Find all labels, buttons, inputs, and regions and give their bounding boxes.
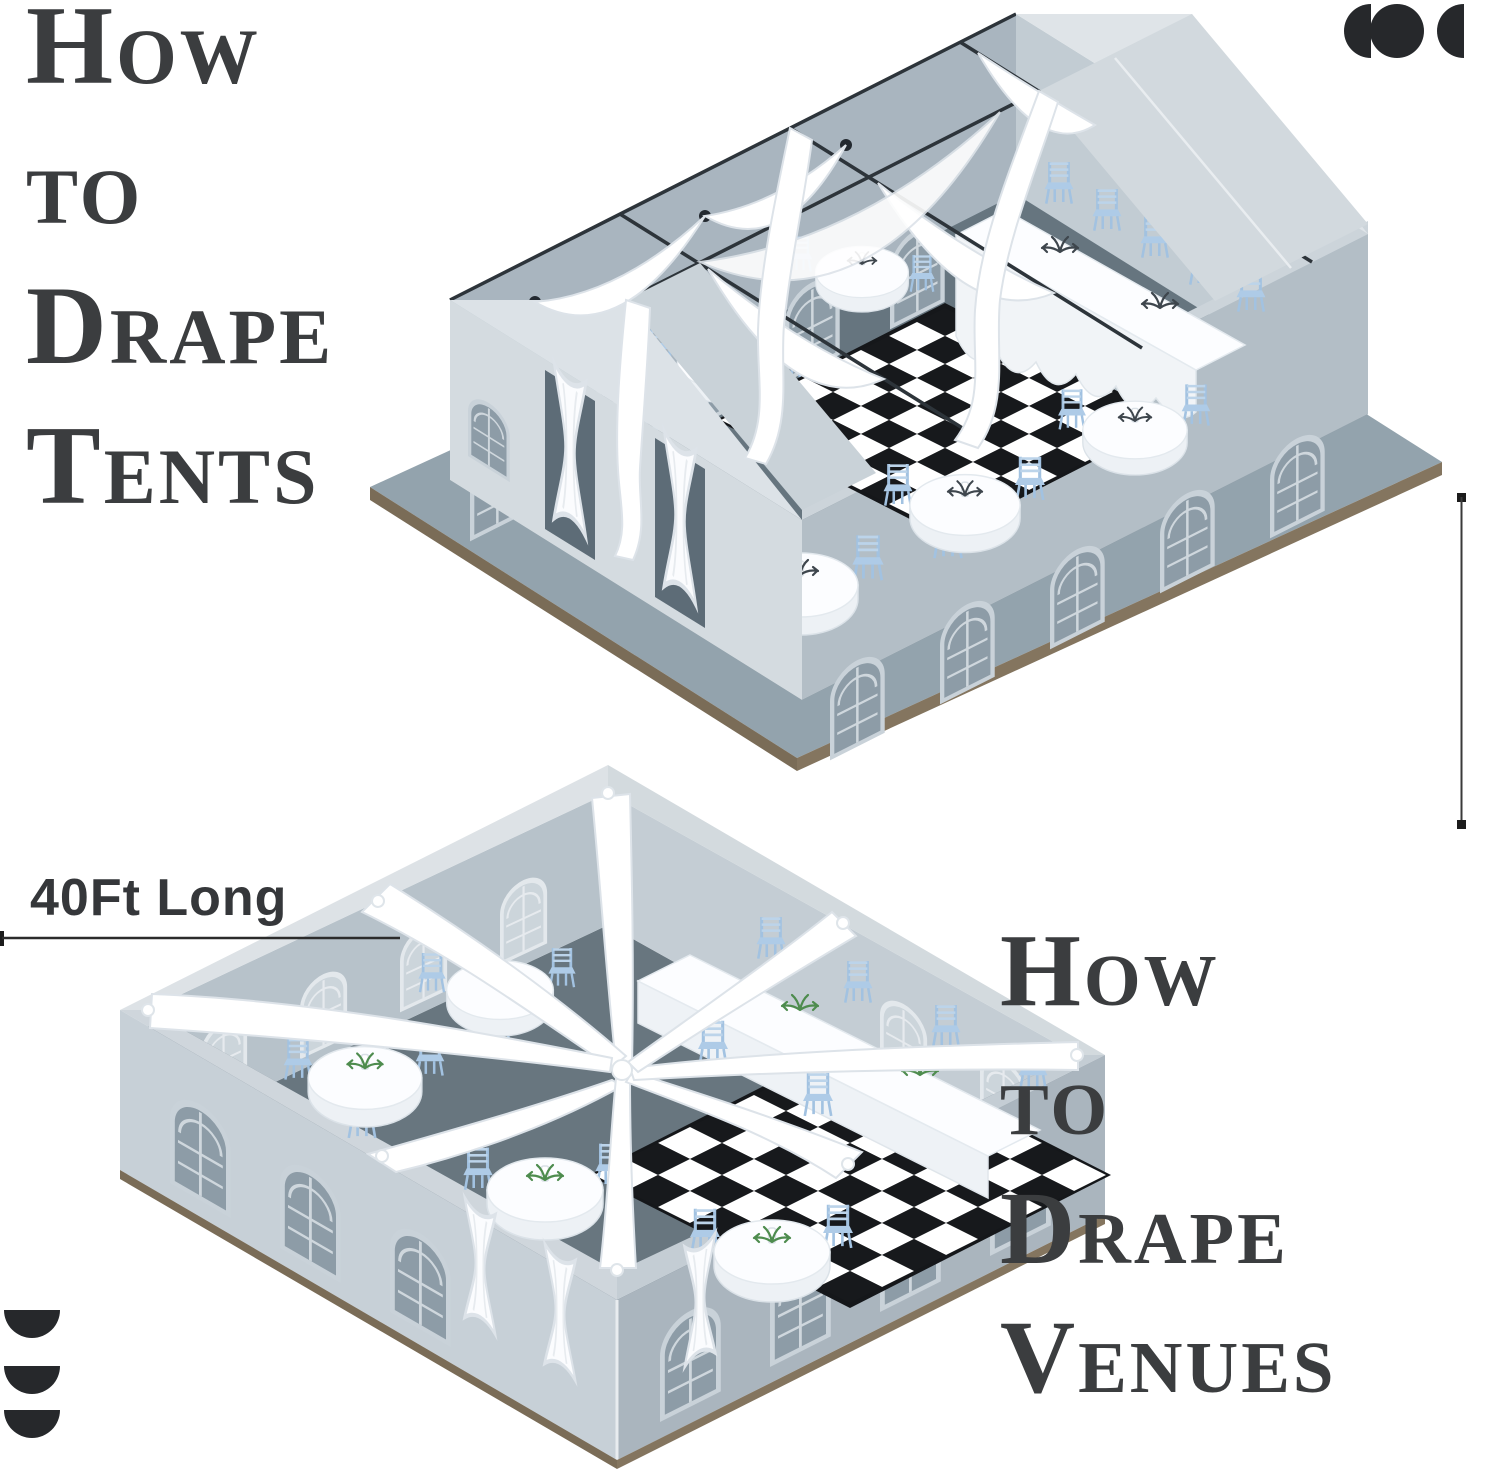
title-how-to-drape-tents: How to Drape Tents (26, 0, 334, 536)
title-line: Drape (1000, 1164, 1337, 1293)
title-line: to (26, 116, 334, 256)
measurement-line-vertical (1457, 493, 1466, 829)
title-line: How (1000, 906, 1337, 1035)
title-how-to-drape-venues: How to Drape Venues (1000, 906, 1337, 1422)
length-measurement-label: 40Ft Long (30, 868, 287, 928)
title-line: to (1000, 1035, 1337, 1164)
tent-illustration (370, 14, 1442, 771)
title-line: Tents (26, 396, 334, 536)
poster-canvas: How to Drape Tents How to Drape Venues 4… (0, 0, 1500, 1469)
title-line: How (26, 0, 334, 116)
circle-and-semicircles-icon (1344, 4, 1464, 58)
stacked-semicircles-icon (4, 1310, 60, 1438)
title-line: Drape (26, 256, 334, 396)
title-line: Venues (1000, 1293, 1337, 1422)
